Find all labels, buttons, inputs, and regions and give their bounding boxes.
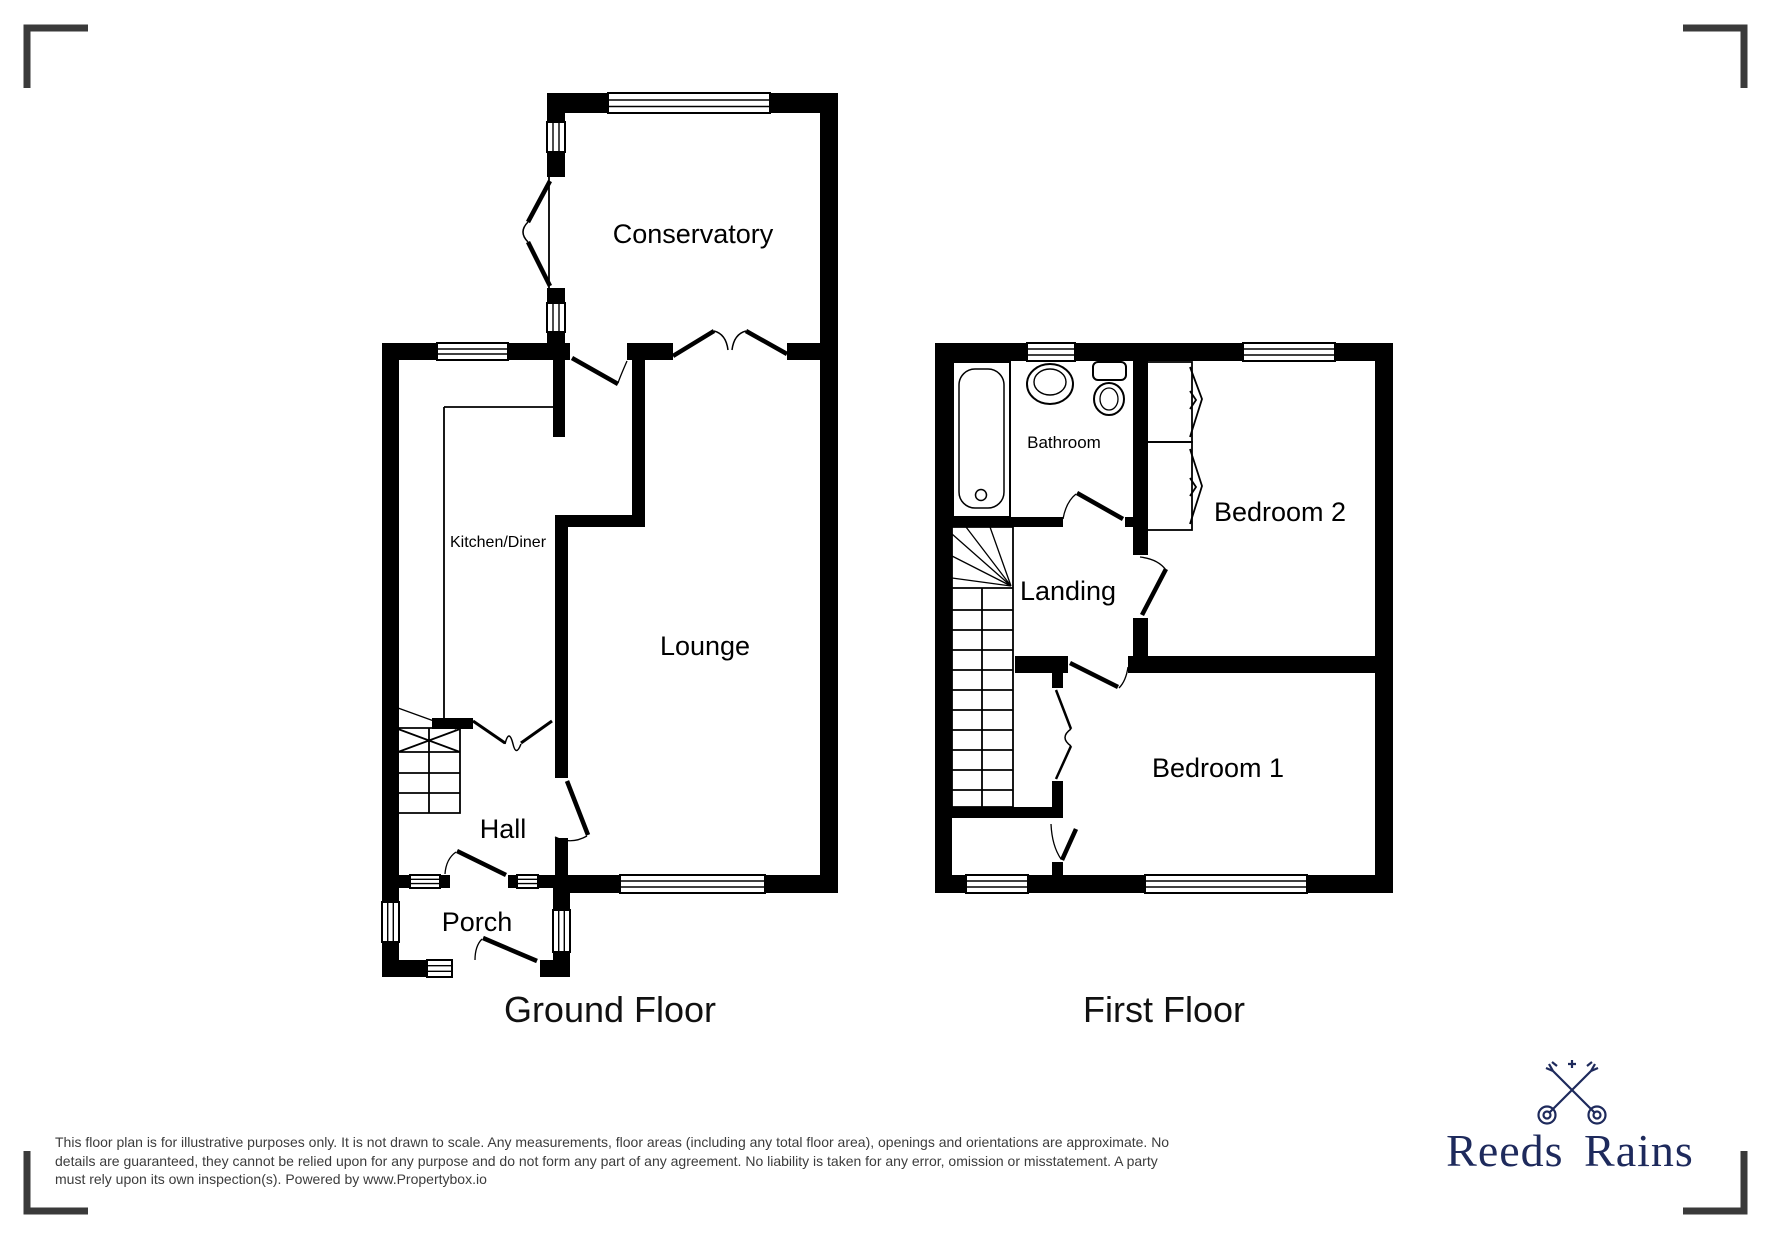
stairs-icon [952, 527, 1013, 807]
door-icon [457, 181, 787, 961]
room-label-bathroom: Bathroom [1027, 433, 1101, 452]
opening-symbol-lines [1056, 690, 1071, 779]
opening-symbols [1065, 729, 1071, 746]
bath-icon [953, 362, 1010, 517]
first-floor-title: First Floor [1083, 989, 1245, 1030]
room-label-lounge: Lounge [660, 631, 750, 661]
door-swing-arcs [1051, 494, 1166, 859]
crop-mark-icon [1683, 28, 1744, 88]
room-label-bedroom-1: Bedroom 1 [1152, 753, 1284, 783]
wardrobe-icon [1143, 362, 1202, 530]
first-floor-plan: Bathroom Bedroom 2 Landing Bedroom 1 Fir… [935, 343, 1393, 1030]
crop-mark-icon [27, 28, 88, 88]
room-label-kitchen-diner: Kitchen/Diner [450, 534, 547, 551]
room-label-landing: Landing [1020, 576, 1116, 606]
disclaimer-line: details are guaranteed, they cannot be r… [55, 1152, 1225, 1171]
window-glazing-lines [966, 349, 1335, 887]
sink-icon [1027, 364, 1073, 404]
disclaimer-text: This floor plan is for illustrative purp… [55, 1133, 1225, 1189]
disclaimer-line: This floor plan is for illustrative purp… [55, 1133, 1225, 1152]
brand-wordmark: Reeds Rains [1420, 1124, 1720, 1177]
floorplan-canvas: Conservatory Kitchen/Diner Lounge Hall P… [0, 0, 1771, 1239]
ground-floor-door-gaps [450, 177, 787, 977]
ground-floor-plan: Conservatory Kitchen/Diner Lounge Hall P… [382, 93, 838, 1030]
opening-symbols [505, 222, 746, 751]
room-label-bedroom-2: Bedroom 2 [1214, 497, 1346, 527]
disclaimer-line: must rely upon its own inspection(s). Po… [55, 1170, 1225, 1189]
room-label-hall: Hall [480, 814, 527, 844]
door-icon [1062, 493, 1166, 860]
crossed-keys-icon [1539, 1060, 1606, 1124]
opening-symbol-lines [473, 721, 552, 743]
room-label-porch: Porch [442, 907, 513, 937]
room-label-conservatory: Conservatory [613, 219, 774, 249]
toilet-icon [1093, 362, 1126, 415]
ground-floor-title: Ground Floor [504, 989, 716, 1030]
crop-marks [27, 28, 1744, 1211]
door-swing-arcs [445, 361, 627, 960]
